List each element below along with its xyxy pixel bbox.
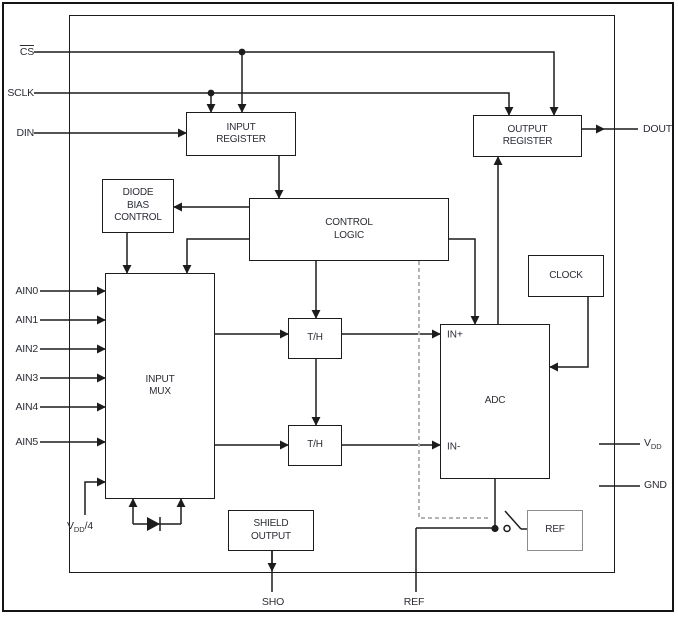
th-bottom-label: T/H	[307, 439, 323, 452]
pin-label-ain1: AIN1	[2, 314, 38, 326]
pin-label-ain3: AIN3	[2, 372, 38, 384]
pin-label-dout: DOUT	[643, 123, 672, 135]
adc-in-minus-label: IN-	[447, 442, 460, 453]
block-th-bottom: T/H	[288, 425, 342, 466]
pin-label-ref: REF	[394, 596, 434, 608]
input-register-label: INPUT REGISTER	[216, 122, 266, 147]
input-mux-label: INPUT MUX	[145, 374, 174, 399]
adc-label: ADC	[485, 395, 506, 408]
block-input-mux: INPUT MUX	[105, 273, 215, 499]
th-top-label: T/H	[307, 332, 323, 345]
block-diode-bias-control: DIODE BIAS CONTROL	[102, 179, 174, 233]
adc-block-diagram: INPUT REGISTER OUTPUT REGISTER DIODE BIA…	[0, 0, 678, 619]
shield-output-label: SHIELD OUTPUT	[251, 518, 291, 543]
pin-label-din: DIN	[2, 127, 34, 139]
block-th-top: T/H	[288, 318, 342, 359]
ref-block-label: REF	[545, 524, 564, 537]
diode-bias-control-label: DIODE BIAS CONTROL	[114, 187, 162, 225]
block-control-logic: CONTROL LOGIC	[249, 198, 449, 261]
block-ref: REF	[527, 510, 583, 551]
block-adc: ADC IN+ IN-	[440, 324, 550, 479]
pin-label-ain0: AIN0	[2, 285, 38, 297]
output-register-label: OUTPUT REGISTER	[503, 124, 553, 149]
adc-in-plus-label: IN+	[447, 330, 463, 341]
block-input-register: INPUT REGISTER	[186, 112, 296, 156]
pin-label-gnd: GND	[644, 479, 667, 491]
pin-label-vdd: VDD	[644, 437, 662, 449]
pin-label-ain5: AIN5	[2, 436, 38, 448]
pin-label-vdd4: VDD/4	[67, 520, 93, 532]
block-output-register: OUTPUT REGISTER	[473, 115, 582, 157]
block-shield-output: SHIELD OUTPUT	[228, 510, 314, 551]
clock-label: CLOCK	[549, 270, 582, 283]
pin-label-ain2: AIN2	[2, 343, 38, 355]
pin-label-sho: SHO	[253, 596, 293, 608]
pin-label-sclk: SCLK	[2, 87, 34, 99]
pin-label-cs: CS	[2, 46, 34, 58]
pin-label-ain4: AIN4	[2, 401, 38, 413]
control-logic-label: CONTROL LOGIC	[325, 217, 373, 242]
block-clock: CLOCK	[528, 255, 604, 297]
